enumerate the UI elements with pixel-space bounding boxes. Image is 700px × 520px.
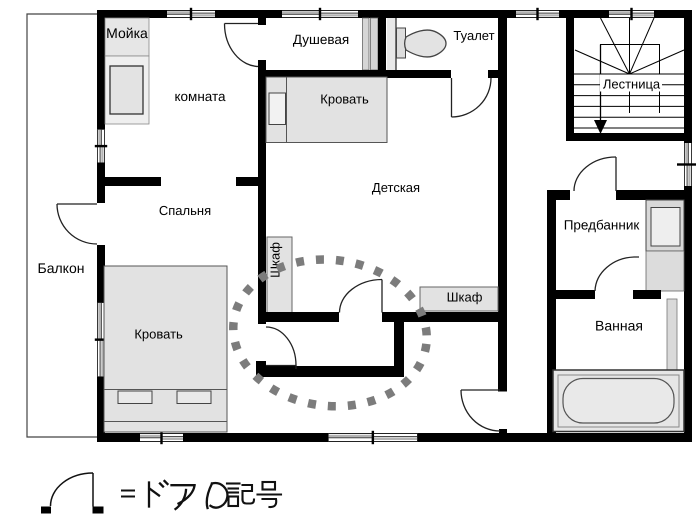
svg-text:Шкаф: Шкаф [268, 242, 283, 278]
svg-text:комната: комната [174, 89, 226, 104]
svg-text:Детская: Детская [372, 180, 420, 195]
svg-text:Душевая: Душевая [293, 32, 349, 47]
svg-text:Лестница: Лестница [603, 77, 661, 92]
svg-text:Ванная: Ванная [595, 318, 643, 334]
svg-text:Спальня: Спальня [159, 203, 211, 218]
svg-text:Кровать: Кровать [134, 327, 183, 342]
svg-text:Туалет: Туалет [453, 28, 494, 43]
svg-text:Предбанник: Предбанник [564, 218, 640, 233]
svg-text:Шкаф: Шкаф [447, 290, 483, 305]
svg-text:Кровать: Кровать [320, 92, 369, 107]
svg-text:Балкон: Балкон [38, 260, 85, 276]
svg-text:Мойка: Мойка [106, 25, 148, 41]
